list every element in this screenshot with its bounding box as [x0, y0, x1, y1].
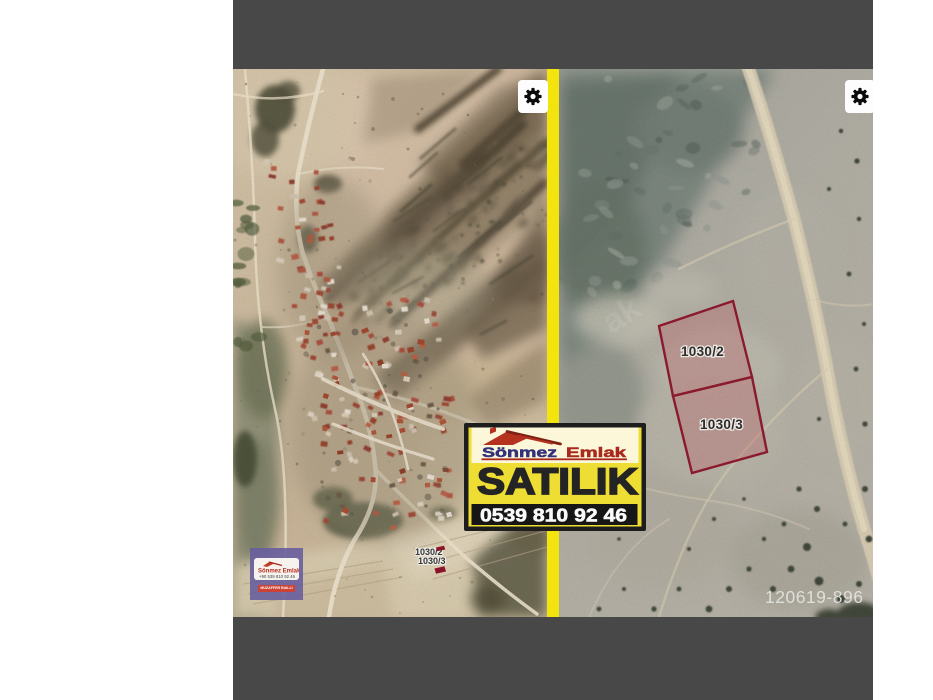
svg-text:SATILIK: SATILIK: [477, 461, 638, 502]
svg-text:0539 810 92 46: 0539 810 92 46: [480, 505, 627, 526]
svg-text:Sönmez: Sönmez: [482, 445, 557, 460]
svg-text:Emlak: Emlak: [566, 445, 626, 460]
svg-text:+90 539 810 92 46: +90 539 810 92 46: [259, 574, 296, 579]
